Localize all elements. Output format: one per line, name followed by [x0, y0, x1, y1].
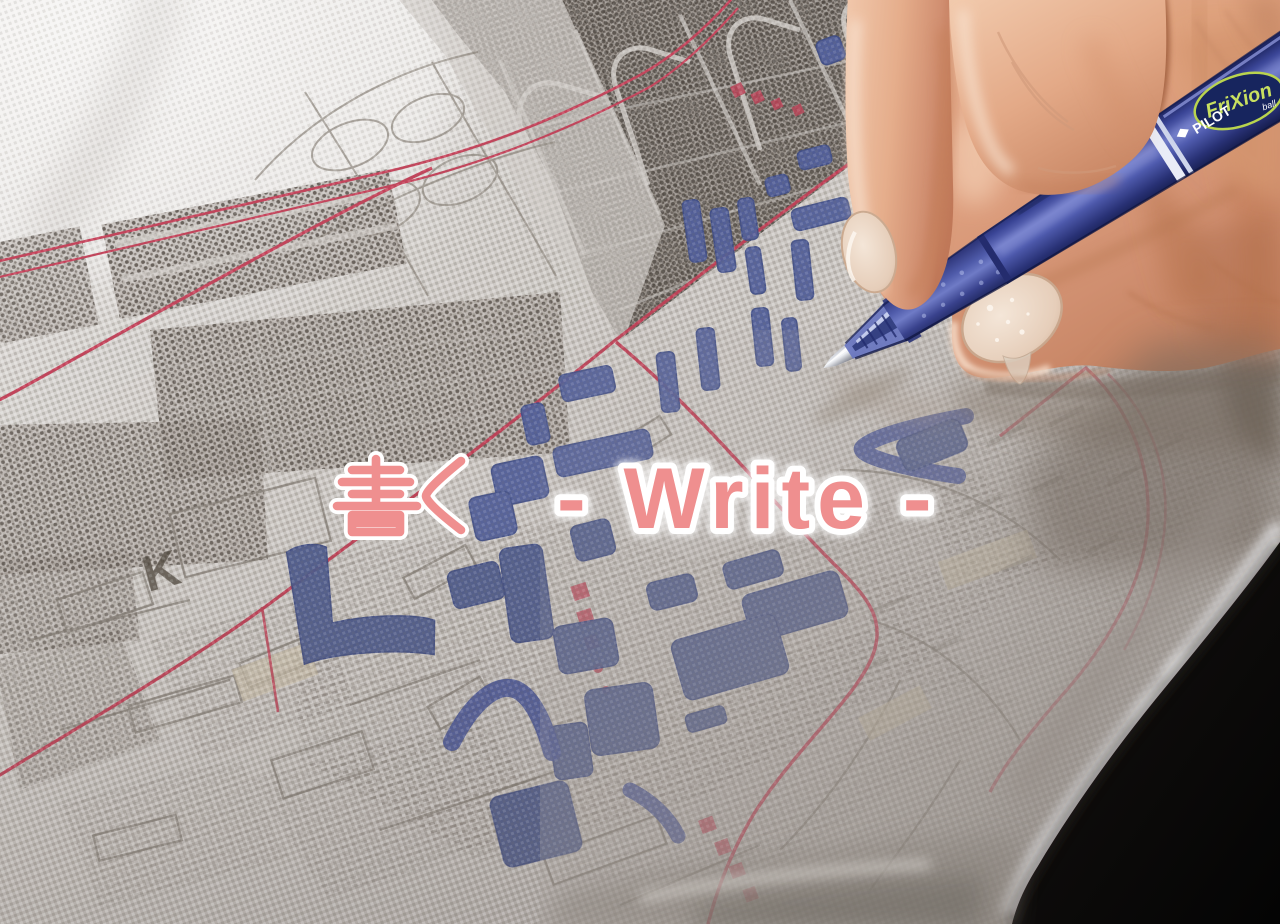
- svg-text:- Write -: - Write -: [557, 451, 939, 547]
